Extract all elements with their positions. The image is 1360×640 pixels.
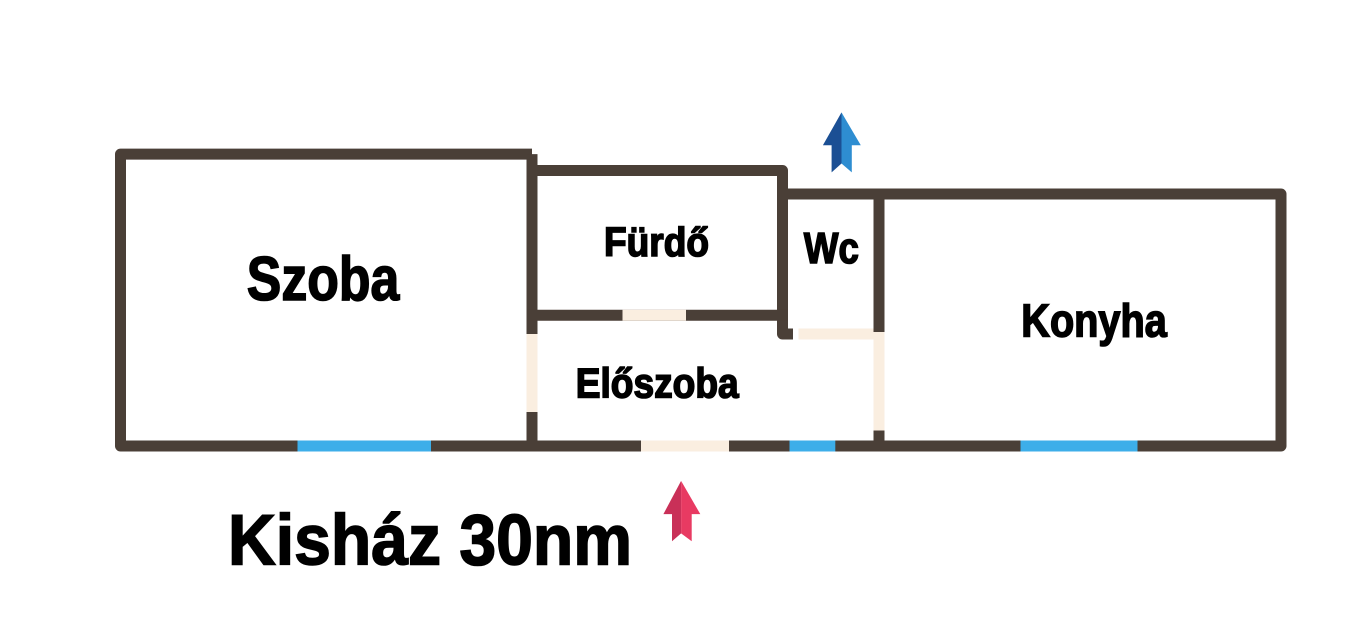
svg-text:Előszoba: Előszoba: [576, 360, 740, 407]
svg-text:Szoba: Szoba: [247, 245, 400, 314]
svg-text:Konyha: Konyha: [1021, 295, 1167, 347]
svg-text:Kisház 30nm: Kisház 30nm: [228, 502, 632, 581]
svg-text:Wc: Wc: [804, 225, 859, 273]
svg-text:Fürdő: Fürdő: [604, 219, 709, 265]
